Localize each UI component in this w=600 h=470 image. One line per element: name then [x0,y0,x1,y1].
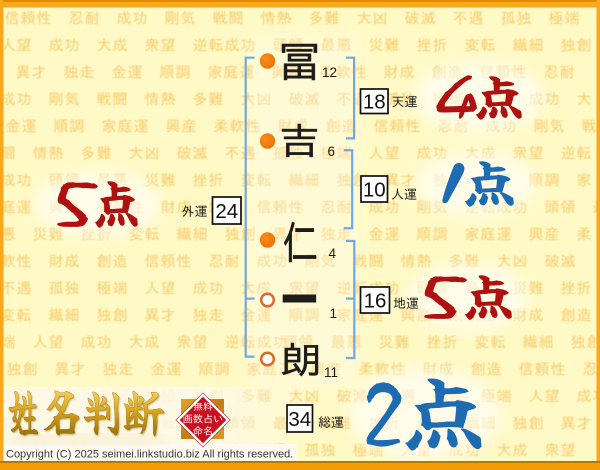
svg-text:4: 4 [329,246,337,261]
svg-text:10: 10 [363,178,386,201]
svg-text:11: 11 [324,365,338,380]
svg-text:1: 1 [330,306,338,321]
svg-text:24: 24 [215,200,238,223]
svg-text:16: 16 [364,289,387,312]
svg-text:34: 34 [288,408,311,431]
svg-text:Copyright (C) 2025 seimei.link: Copyright (C) 2025 seimei.linkstudio.biz… [6,449,293,461]
svg-text:12: 12 [322,65,337,80]
svg-text:6: 6 [328,144,336,159]
svg-text:18: 18 [363,91,386,114]
